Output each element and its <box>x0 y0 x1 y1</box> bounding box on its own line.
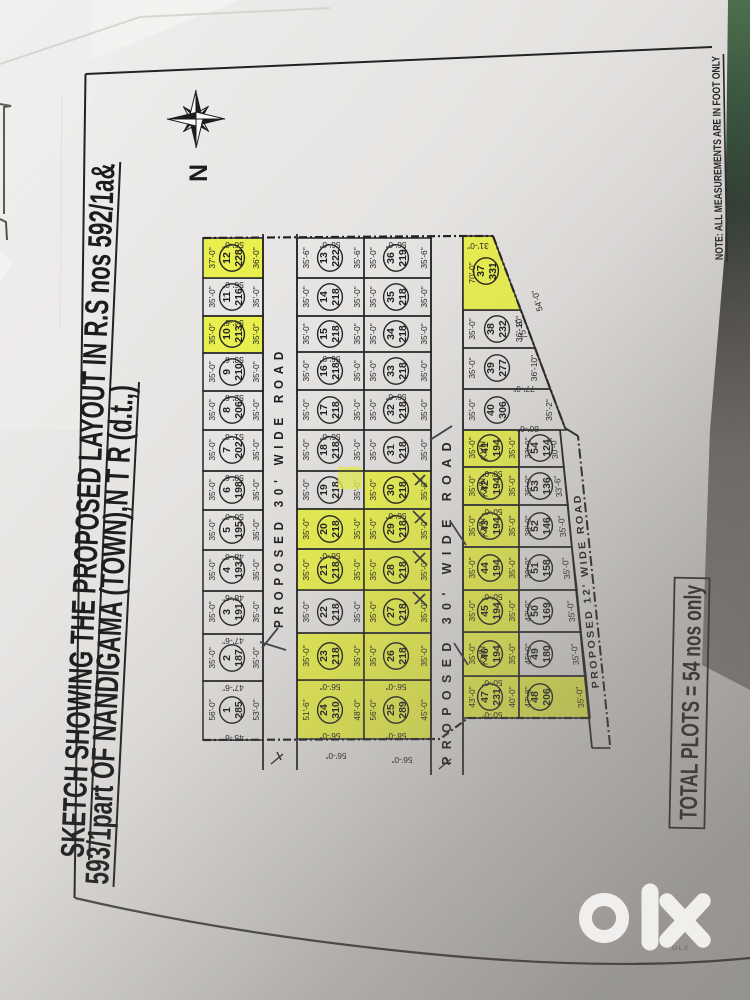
svg-text:O L X: O L X <box>672 945 689 952</box>
